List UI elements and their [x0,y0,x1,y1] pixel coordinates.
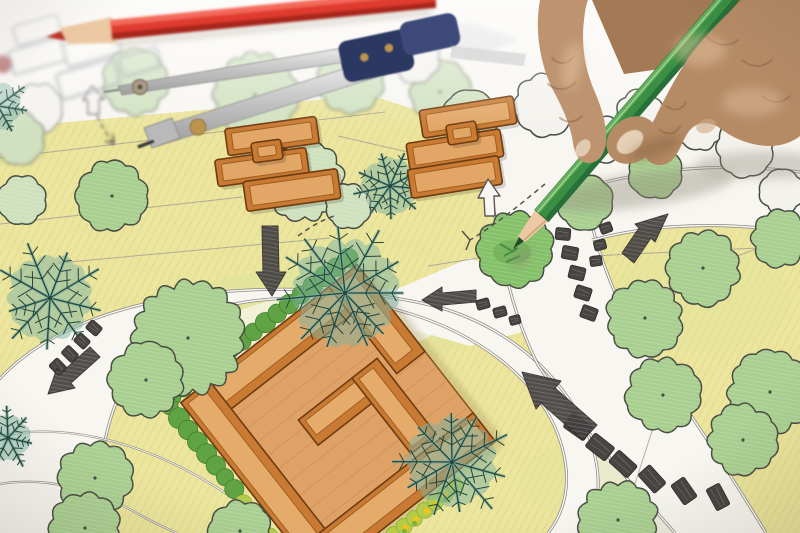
vignette [0,0,800,533]
photo-landscape-design-plan [0,0,800,533]
photo-canvas [0,0,800,533]
